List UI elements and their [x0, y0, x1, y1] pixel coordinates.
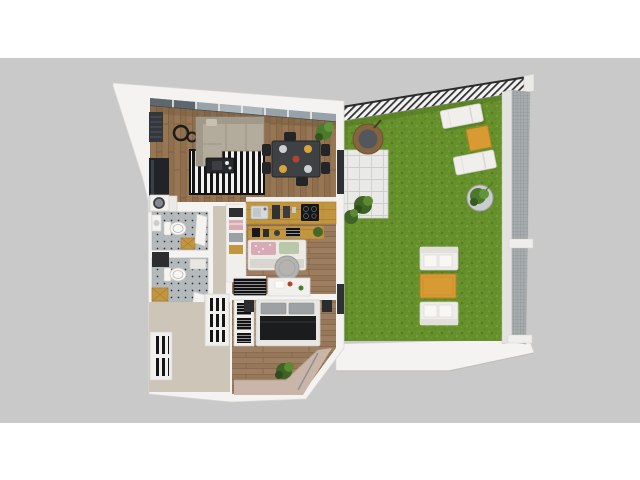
- pillow: [289, 303, 314, 314]
- nightstand-right: [322, 300, 332, 312]
- garden-sofa-2: [420, 302, 458, 325]
- orange-side-table: [466, 125, 492, 151]
- boundary-wall-face: [502, 90, 512, 344]
- shower-mat: [152, 252, 169, 267]
- dining-chair: [296, 177, 308, 186]
- hallway-floor: [213, 206, 226, 302]
- pillow: [261, 303, 286, 314]
- kitchen: [246, 197, 336, 224]
- toilet: [170, 222, 186, 235]
- shelf-plant: [313, 227, 323, 237]
- orange-coffee-table: [420, 274, 456, 298]
- side-window-2: [337, 284, 344, 314]
- dining-chair: [321, 144, 330, 156]
- bathroom-door: [195, 214, 207, 246]
- washer-drum: [154, 198, 164, 208]
- shelf-books: [286, 228, 300, 237]
- fence-corner-post: [524, 74, 534, 93]
- garden-sofa-set: [420, 247, 460, 325]
- bath-shelf: [190, 259, 206, 269]
- wall-bottom-cap: [508, 335, 532, 343]
- floor-plan-svg: [0, 0, 640, 480]
- appliance: [283, 206, 290, 218]
- bookshelf: [234, 279, 266, 295]
- green-pillow: [279, 242, 299, 254]
- wall-divider-cap: [509, 239, 533, 248]
- toilet: [170, 268, 186, 281]
- wardrobe-rack-2: [205, 294, 229, 346]
- coffee-table: [206, 158, 234, 173]
- round-planter: [467, 184, 493, 211]
- cooktop: [301, 204, 319, 221]
- sofa-pillow: [206, 119, 217, 126]
- nightstand-left: [244, 300, 254, 312]
- dining-chair: [262, 162, 271, 174]
- floor-plan-render: [0, 0, 640, 480]
- dining-chair: [284, 132, 296, 141]
- dining-chair: [262, 144, 271, 156]
- garden-sofa-1: [420, 247, 458, 270]
- wardrobe-rack-1: [150, 332, 172, 380]
- side-window-1: [337, 150, 344, 194]
- dark-duvet: [260, 316, 316, 342]
- appliance: [272, 205, 280, 219]
- center-bowl: [293, 156, 300, 163]
- desk: [268, 278, 310, 296]
- faucet: [264, 208, 267, 211]
- dining-chair: [321, 162, 330, 174]
- garden: [336, 74, 534, 371]
